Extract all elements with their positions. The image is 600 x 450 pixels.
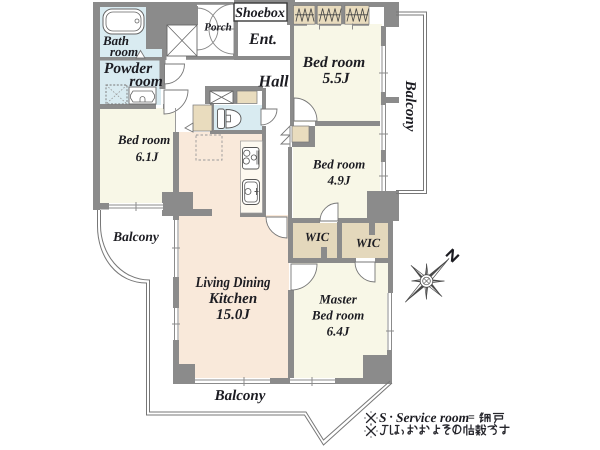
svg-text:room: room: [129, 73, 163, 90]
svg-text:Master: Master: [318, 292, 358, 307]
svg-text:WIC: WIC: [305, 230, 330, 244]
svg-text:Bed room: Bed room: [312, 157, 365, 172]
svg-text:Service room: Service room: [396, 410, 469, 425]
svg-text:Ent.: Ent.: [248, 31, 277, 48]
svg-text:Balcony: Balcony: [112, 229, 160, 244]
svg-text:WIC: WIC: [356, 236, 381, 250]
svg-text:Balcony: Balcony: [402, 80, 418, 132]
svg-text:room: room: [110, 44, 138, 59]
svg-text:Bed room: Bed room: [117, 132, 170, 147]
svg-text:Bed room: Bed room: [302, 54, 365, 71]
svg-text:Hall: Hall: [257, 72, 289, 91]
svg-text:Bed room: Bed room: [311, 308, 364, 323]
svg-text:Balcony: Balcony: [214, 388, 266, 404]
svg-text:Living Dining: Living Dining: [195, 275, 271, 291]
svg-text:6.4J: 6.4J: [327, 324, 350, 339]
svg-text:Shoebox: Shoebox: [235, 6, 285, 21]
svg-text:4.9J: 4.9J: [327, 173, 351, 188]
svg-text:6.1J: 6.1J: [136, 149, 159, 164]
svg-text:=: =: [468, 410, 475, 424]
svg-text:5.5J: 5.5J: [322, 70, 350, 87]
svg-text:·: ·: [389, 409, 393, 424]
svg-text:S: S: [379, 410, 387, 425]
svg-text:15.0J: 15.0J: [216, 307, 250, 323]
svg-text:Kitchen: Kitchen: [208, 291, 257, 307]
svg-text:Porch: Porch: [204, 22, 232, 34]
